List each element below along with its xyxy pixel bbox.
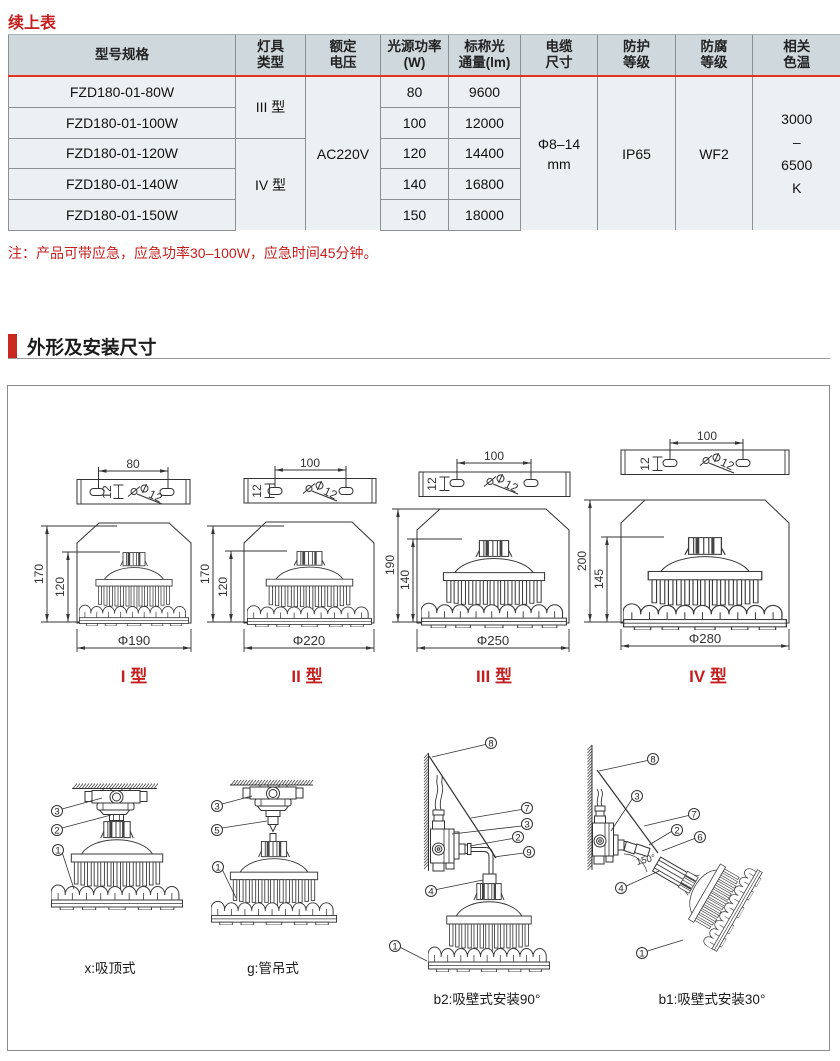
svg-text:4: 4 <box>428 887 433 898</box>
svg-text:6: 6 <box>697 833 702 844</box>
svg-text:7: 7 <box>524 804 529 815</box>
svg-text:8: 8 <box>488 739 493 750</box>
svg-text:7: 7 <box>691 810 696 821</box>
svg-text:IV 型: IV 型 <box>689 666 727 686</box>
svg-text:145: 145 <box>592 569 606 589</box>
svg-text:5: 5 <box>214 826 219 837</box>
svg-text:1: 1 <box>55 846 60 857</box>
svg-text:12: 12 <box>250 484 264 498</box>
svg-text:150°: 150° <box>635 852 657 867</box>
svg-text:1: 1 <box>215 863 220 874</box>
svg-text:4: 4 <box>618 884 623 895</box>
svg-text:2: 2 <box>515 833 520 844</box>
svg-text:190: 190 <box>383 555 397 575</box>
svg-text:170: 170 <box>198 564 212 584</box>
svg-text:x:吸顶式: x:吸顶式 <box>84 961 136 976</box>
svg-text:g:管吊式: g:管吊式 <box>247 961 299 976</box>
svg-text:3: 3 <box>54 807 59 818</box>
svg-text:1: 1 <box>392 942 397 953</box>
svg-text:I 型: I 型 <box>121 666 147 686</box>
svg-text:100: 100 <box>697 429 717 443</box>
svg-text:Φ250: Φ250 <box>477 633 510 648</box>
svg-text:II 型: II 型 <box>291 666 322 686</box>
svg-text:Φ190: Φ190 <box>118 633 151 648</box>
svg-text:b2:吸壁式安装90°: b2:吸壁式安装90° <box>434 992 541 1007</box>
svg-text:12: 12 <box>425 477 439 491</box>
svg-text:200: 200 <box>575 551 589 571</box>
svg-text:1: 1 <box>639 949 644 960</box>
svg-text:III 型: III 型 <box>476 666 512 686</box>
svg-text:12: 12 <box>100 485 114 499</box>
svg-text:3: 3 <box>524 820 529 831</box>
svg-text:100: 100 <box>300 456 320 470</box>
svg-text:80: 80 <box>126 457 140 471</box>
svg-text:Φ280: Φ280 <box>689 631 722 646</box>
svg-text:140: 140 <box>398 570 412 590</box>
svg-text:120: 120 <box>53 577 67 597</box>
svg-text:3: 3 <box>634 792 639 803</box>
svg-text:3: 3 <box>214 802 219 813</box>
svg-text:b1:吸壁式安装30°: b1:吸壁式安装30° <box>659 992 766 1007</box>
svg-text:12: 12 <box>638 457 652 471</box>
svg-text:2: 2 <box>54 826 59 837</box>
svg-text:8: 8 <box>650 755 655 766</box>
svg-text:9: 9 <box>526 848 531 859</box>
svg-text:170: 170 <box>32 564 46 584</box>
svg-text:Φ220: Φ220 <box>293 633 326 648</box>
svg-text:120: 120 <box>216 577 230 597</box>
svg-text:2: 2 <box>674 826 679 837</box>
svg-text:100: 100 <box>484 449 504 463</box>
